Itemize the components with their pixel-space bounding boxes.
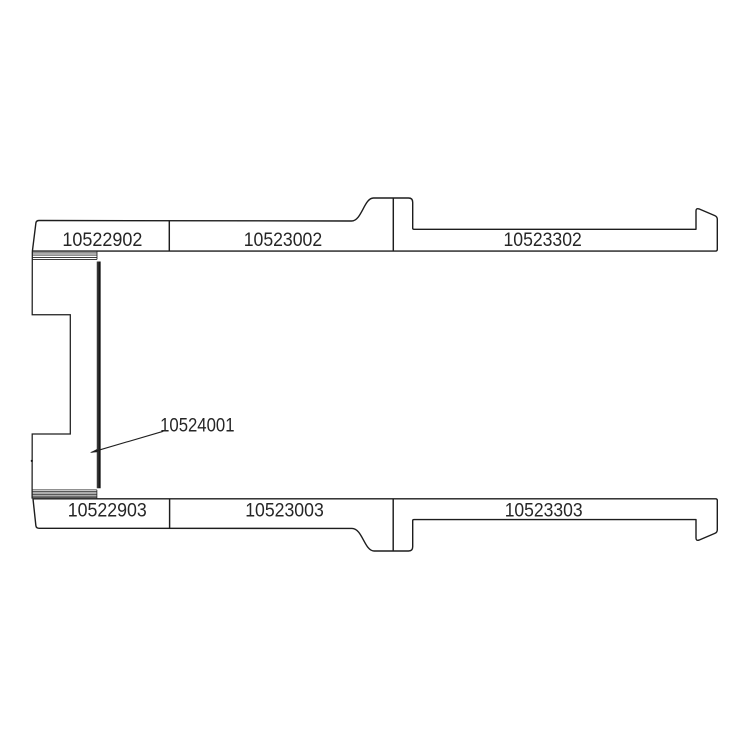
svg-text:10523302: 10523302	[504, 229, 582, 251]
svg-text:10522902: 10522902	[62, 229, 142, 251]
svg-text:10524001: 10524001	[160, 415, 234, 437]
svg-text:10523003: 10523003	[245, 499, 324, 521]
svg-text:10523303: 10523303	[505, 499, 583, 521]
svg-text:10522903: 10522903	[68, 499, 147, 521]
svg-text:10523002: 10523002	[244, 229, 323, 251]
